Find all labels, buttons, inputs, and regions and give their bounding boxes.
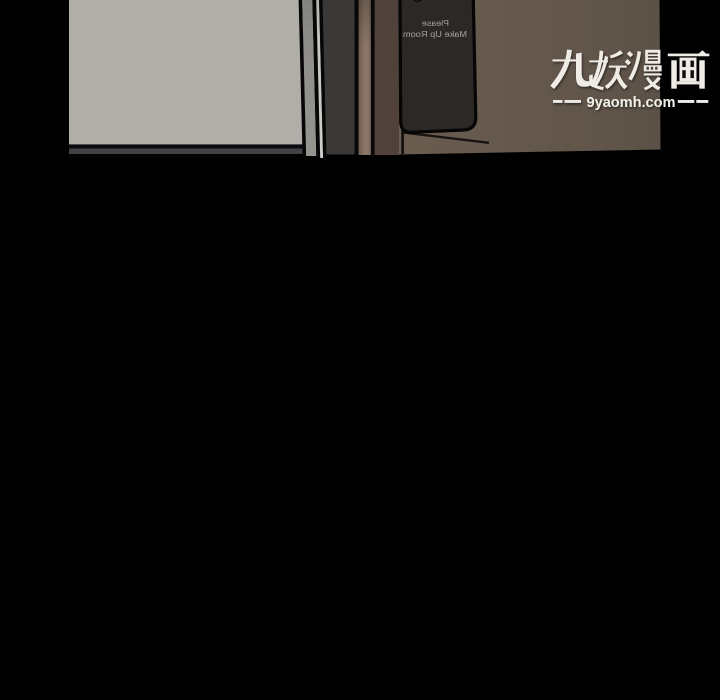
svg-text:9yaomh.com: 9yaomh.com (587, 94, 676, 111)
svg-text:Please: Please (422, 19, 449, 28)
svg-text:Make Up Room: Make Up Room (403, 30, 467, 39)
